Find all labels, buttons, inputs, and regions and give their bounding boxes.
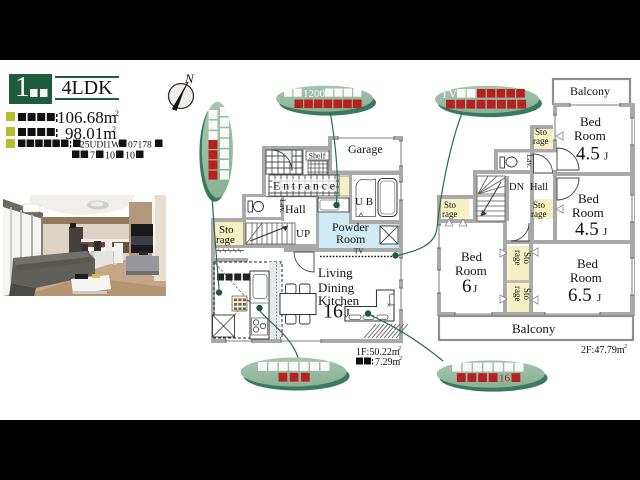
svg-text:16: 16 (499, 373, 511, 385)
svg-text:TV: TV (441, 87, 457, 101)
svg-text:1200: 1200 (303, 88, 326, 100)
